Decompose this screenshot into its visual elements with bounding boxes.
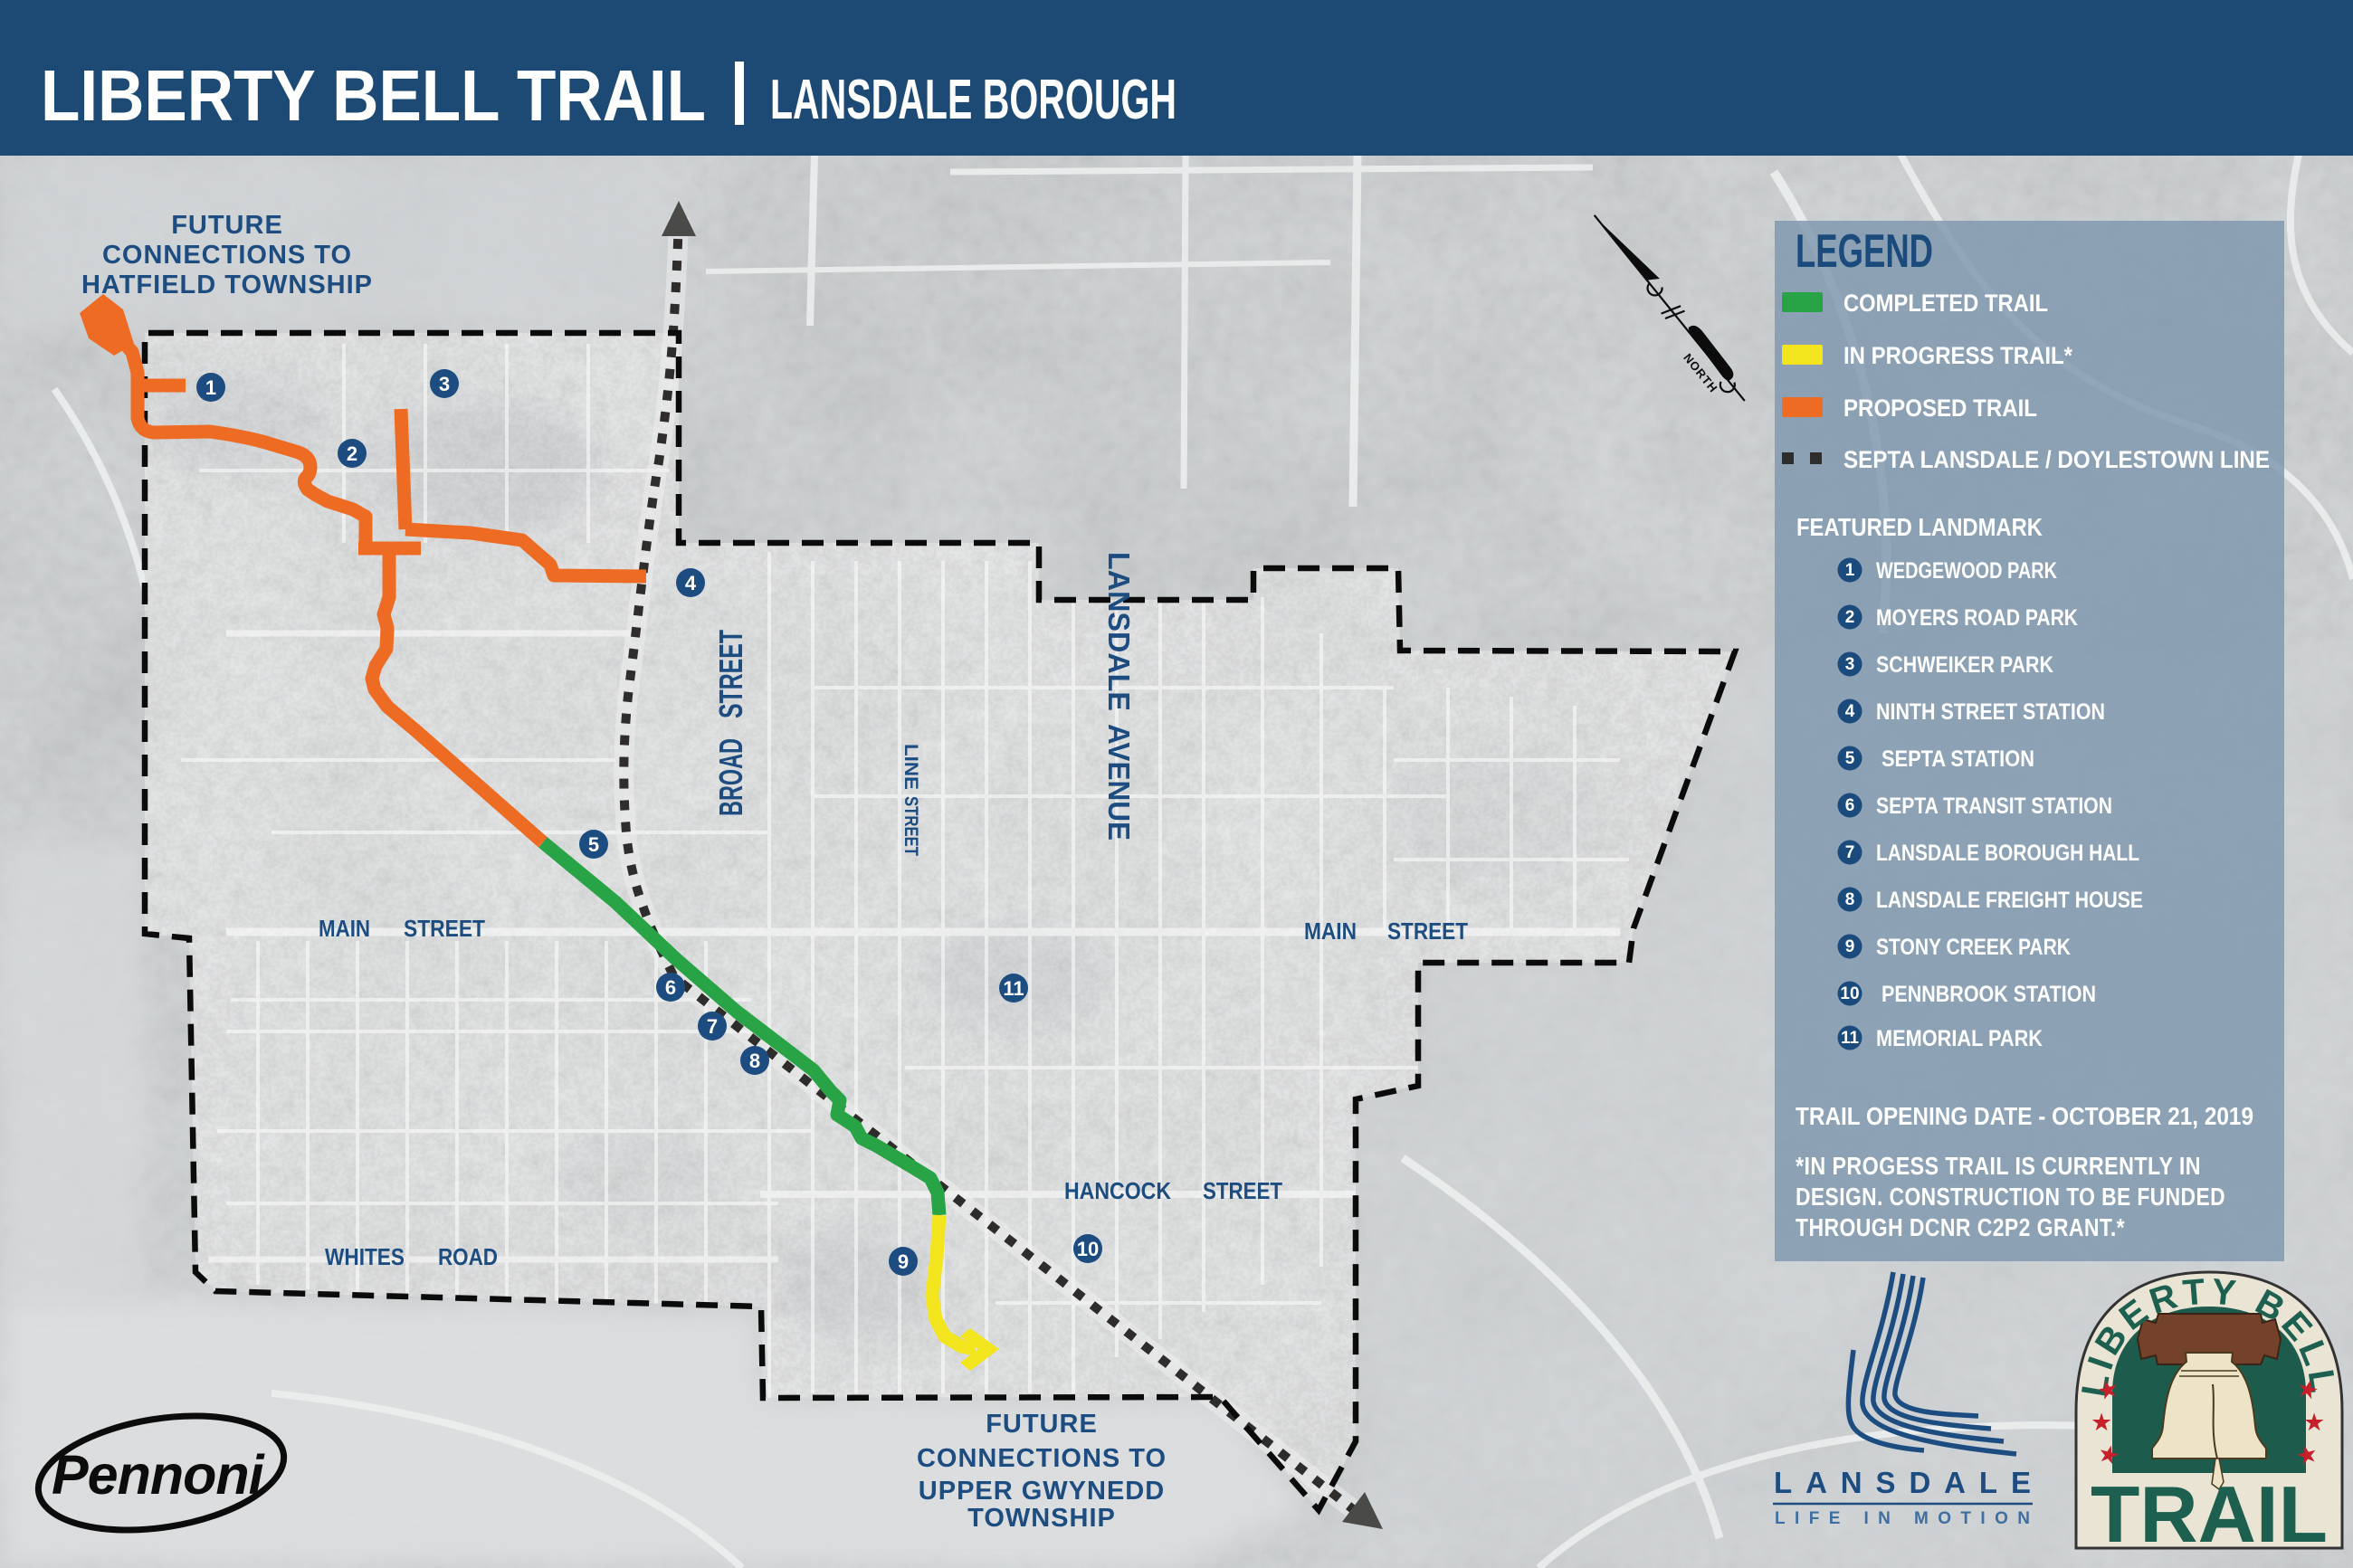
svg-text:SCHWEIKER PARK: SCHWEIKER PARK <box>1876 652 2053 678</box>
svg-text:FUTURE: FUTURE <box>986 1410 1098 1439</box>
svg-text:THROUGH DCNR C2P2 GRANT.*: THROUGH DCNR C2P2 GRANT.* <box>1796 1213 2125 1241</box>
svg-text:DESIGN. CONSTRUCTION TO BE FUN: DESIGN. CONSTRUCTION TO BE FUNDED <box>1796 1183 2225 1211</box>
svg-text:3: 3 <box>439 373 450 395</box>
svg-text:5: 5 <box>588 833 599 856</box>
svg-text:Pennoni: Pennoni <box>52 1444 265 1506</box>
svg-text:11: 11 <box>1841 1029 1860 1048</box>
svg-text:4: 4 <box>1845 702 1855 721</box>
svg-text:LEGEND: LEGEND <box>1796 225 1933 278</box>
svg-text:STREET: STREET <box>1203 1177 1282 1204</box>
svg-text:WEDGEWOOD PARK: WEDGEWOOD PARK <box>1876 558 2057 584</box>
svg-text:LANSDALE: LANSDALE <box>1102 552 1136 711</box>
svg-text:HATFIELD TOWNSHIP: HATFIELD TOWNSHIP <box>81 271 373 299</box>
svg-text:SEPTA TRANSIT STATION: SEPTA TRANSIT STATION <box>1876 794 2112 819</box>
svg-text:9: 9 <box>898 1250 909 1273</box>
svg-text:BROAD: BROAD <box>712 738 749 816</box>
svg-text:LANSDALE BOROUGH HALL: LANSDALE BOROUGH HALL <box>1876 841 2139 866</box>
svg-text:STREET: STREET <box>900 796 921 856</box>
svg-text:TRAIL OPENING DATE - OCTOBER 2: TRAIL OPENING DATE - OCTOBER 21, 2019 <box>1796 1102 2253 1130</box>
svg-text:TOWNSHIP: TOWNSHIP <box>967 1504 1116 1533</box>
svg-text:TRAIL: TRAIL <box>2091 1469 2328 1559</box>
svg-text:6: 6 <box>665 976 676 999</box>
svg-text:CONNECTIONS TO: CONNECTIONS TO <box>102 241 352 270</box>
svg-text:STREET: STREET <box>404 915 485 942</box>
svg-text:7: 7 <box>1845 843 1855 862</box>
svg-text:FEATURED LANDMARK: FEATURED LANDMARK <box>1796 513 2043 541</box>
svg-text:COMPLETED TRAIL: COMPLETED TRAIL <box>1843 290 2048 317</box>
svg-text:STREET: STREET <box>1387 917 1468 945</box>
svg-text:4: 4 <box>685 572 697 594</box>
svg-text:6: 6 <box>1845 796 1855 815</box>
svg-text:9: 9 <box>1845 937 1855 956</box>
svg-text:★: ★ <box>2303 1409 2325 1436</box>
svg-text:IN PROGRESS TRAIL*: IN PROGRESS TRAIL* <box>1843 342 2072 369</box>
svg-text:HANCOCK: HANCOCK <box>1064 1177 1171 1204</box>
svg-text:MEMORIAL PARK: MEMORIAL PARK <box>1876 1026 2043 1051</box>
svg-text:7: 7 <box>707 1015 718 1038</box>
svg-text:11: 11 <box>1003 977 1024 1000</box>
svg-text:LIBERTY BELL TRAIL: LIBERTY BELL TRAIL <box>41 55 706 136</box>
svg-text:2: 2 <box>1845 608 1855 627</box>
svg-text:LANSDALE BOROUGH: LANSDALE BOROUGH <box>770 69 1176 131</box>
svg-text:MAIN: MAIN <box>319 915 370 942</box>
svg-text:8: 8 <box>1845 890 1855 909</box>
svg-text:2: 2 <box>347 442 357 465</box>
svg-text:5: 5 <box>1845 749 1855 768</box>
svg-text:★: ★ <box>2091 1409 2112 1436</box>
svg-text:MOYERS ROAD PARK: MOYERS ROAD PARK <box>1876 605 2078 631</box>
svg-text:STREET: STREET <box>712 630 749 718</box>
svg-text:10: 10 <box>1840 984 1859 1003</box>
svg-text:NINTH STREET STATION: NINTH STREET STATION <box>1876 699 2105 725</box>
svg-text:MAIN: MAIN <box>1304 917 1357 945</box>
svg-text:1: 1 <box>1845 561 1855 580</box>
svg-text:1: 1 <box>205 376 216 399</box>
svg-text:STONY CREEK PARK: STONY CREEK PARK <box>1876 935 2071 960</box>
svg-text:*IN PROGESS TRAIL IS CURRENTLY: *IN PROGESS TRAIL IS CURRENTLY IN <box>1796 1152 2201 1180</box>
svg-text:3: 3 <box>1845 655 1855 674</box>
svg-text:SEPTA LANSDALE / DOYLESTOWN LI: SEPTA LANSDALE / DOYLESTOWN LINE <box>1843 446 2270 473</box>
svg-text:PENNBROOK STATION: PENNBROOK STATION <box>1881 982 2096 1007</box>
svg-text:WHITES: WHITES <box>325 1243 405 1270</box>
svg-text:CONNECTIONS TO: CONNECTIONS TO <box>917 1444 1167 1473</box>
svg-text:SEPTA STATION: SEPTA STATION <box>1881 746 2034 772</box>
svg-text:LINE: LINE <box>900 744 921 790</box>
svg-text:FUTURE: FUTURE <box>171 211 283 240</box>
svg-text:UPPER GWYNEDD: UPPER GWYNEDD <box>919 1477 1165 1506</box>
svg-text:8: 8 <box>749 1050 760 1072</box>
svg-text:LANSDALE FREIGHT HOUSE: LANSDALE FREIGHT HOUSE <box>1876 888 2143 913</box>
svg-text:ROAD: ROAD <box>438 1243 498 1270</box>
svg-text:AVENUE: AVENUE <box>1102 724 1136 841</box>
svg-text:PROPOSED TRAIL: PROPOSED TRAIL <box>1843 394 2037 422</box>
svg-text:10: 10 <box>1077 1238 1099 1260</box>
